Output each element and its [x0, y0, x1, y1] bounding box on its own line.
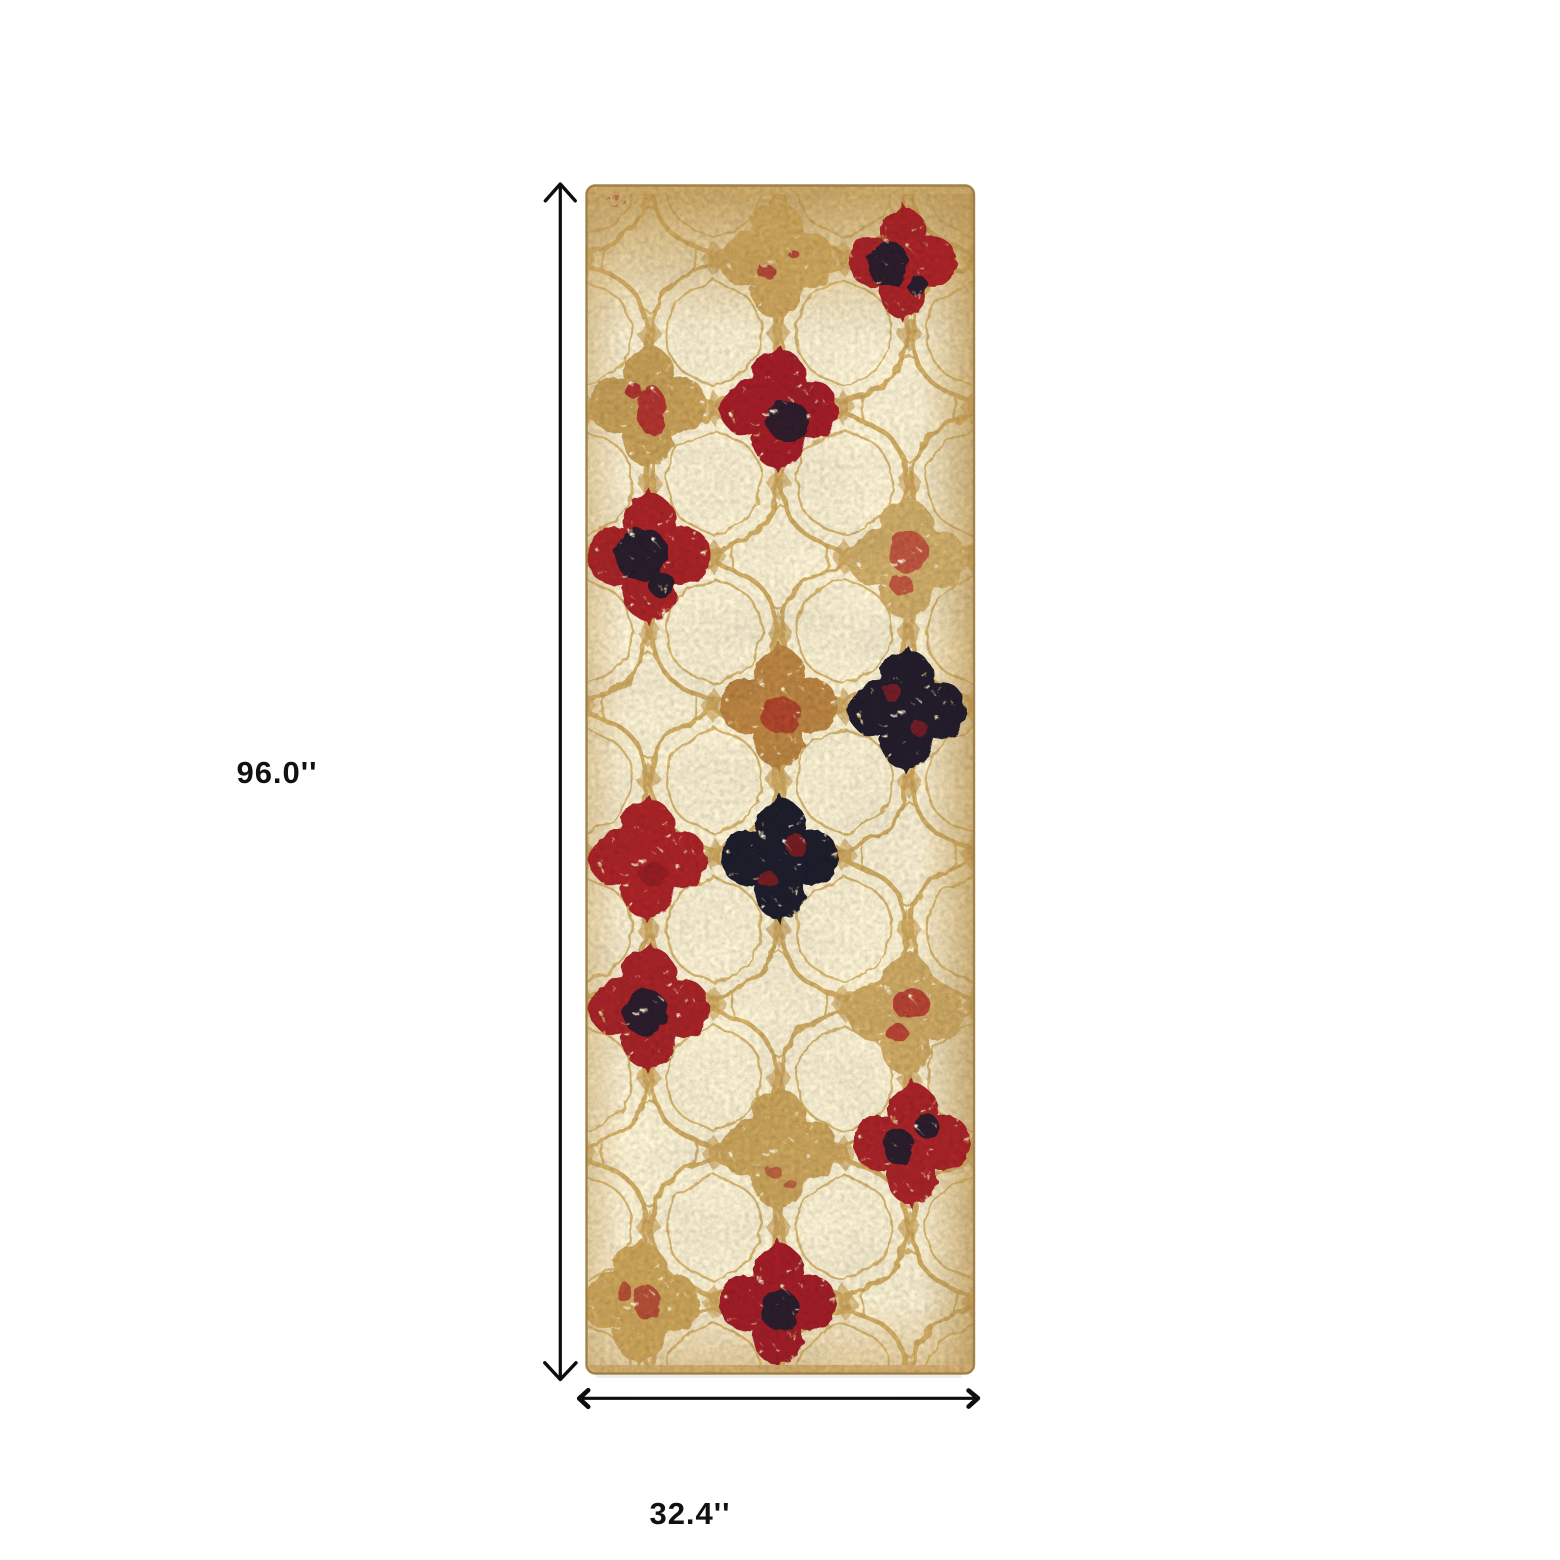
svg-text:96.0'': 96.0''	[236, 755, 317, 790]
svg-text:32.4'': 32.4''	[649, 1496, 730, 1531]
